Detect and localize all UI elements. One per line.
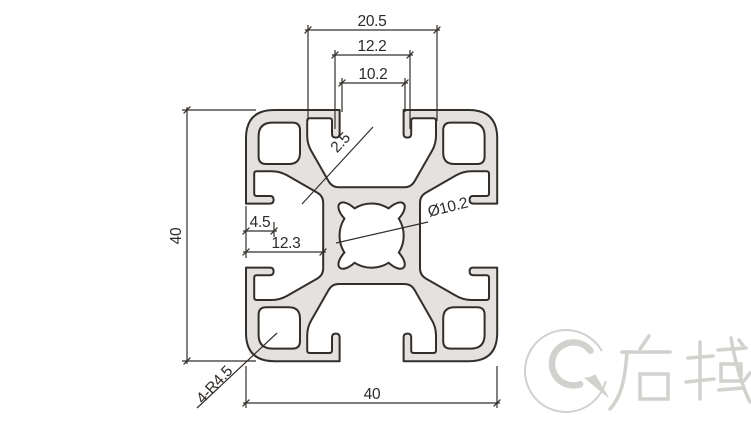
dim-slot-opening-width: 10.2 bbox=[359, 66, 388, 83]
corner-cavity bbox=[259, 307, 300, 348]
dim-slot-depth: 4.5 bbox=[250, 214, 271, 231]
drawing-canvas: 20.5 12.2 10.2 40 40 4.5 12.3 2.5 Ø10.2 … bbox=[0, 0, 751, 428]
logo-character-stroke bbox=[686, 379, 714, 382]
technical-drawing: 20.5 12.2 10.2 40 40 4.5 12.3 2.5 Ø10.2 … bbox=[0, 0, 751, 428]
logo-character-stroke bbox=[688, 356, 713, 358]
center-bore-hole bbox=[338, 202, 404, 268]
dim-slot-lip-width: 12.2 bbox=[358, 38, 387, 55]
dim-center-bore: Ø10.2 bbox=[426, 194, 470, 220]
dim-slot-chamber-width: 20.5 bbox=[358, 13, 387, 30]
corner-cavity bbox=[443, 307, 484, 348]
logo-character-stroke bbox=[744, 373, 750, 381]
dim-overall-width: 40 bbox=[364, 386, 381, 403]
dim-cavity-depth: 12.3 bbox=[272, 235, 301, 252]
logo-character-stroke bbox=[610, 352, 627, 409]
logo-character-stroke bbox=[739, 340, 744, 347]
watermark-logo bbox=[525, 330, 750, 412]
logo-character-stroke bbox=[640, 374, 668, 399]
logo-q-arc bbox=[552, 342, 591, 385]
logo-character-stroke bbox=[719, 388, 743, 390]
dim-overall-height: 40 bbox=[168, 227, 185, 244]
logo-character-stroke bbox=[640, 336, 649, 349]
dim-corner-radius: 4-R4.5 bbox=[193, 363, 236, 407]
corner-cavity bbox=[443, 123, 484, 164]
corner-cavity bbox=[259, 123, 300, 164]
dimension-labels: 20.5 12.2 10.2 40 40 4.5 12.3 2.5 Ø10.2 … bbox=[168, 13, 470, 407]
